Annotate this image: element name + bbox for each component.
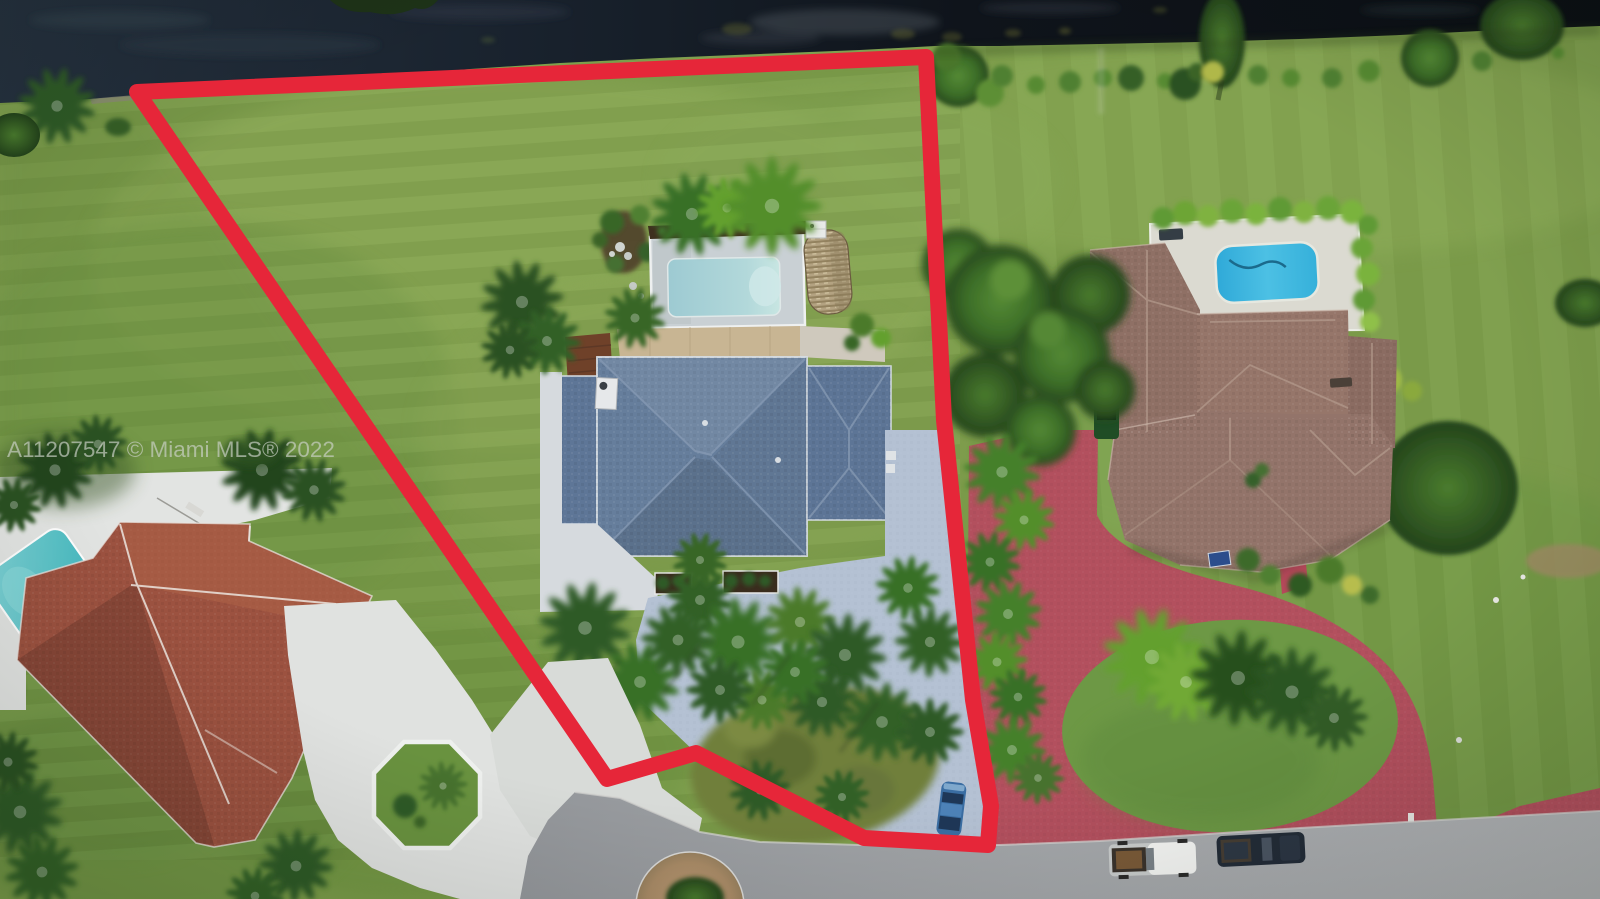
svg-text:A11207547 © Miami MLS® 2022: A11207547 © Miami MLS® 2022 (7, 437, 335, 462)
